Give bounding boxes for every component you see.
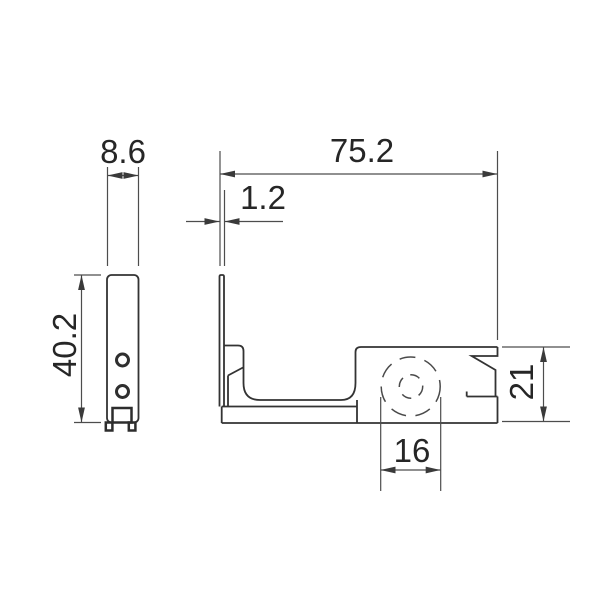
dimension-text-75-2: 75.2 — [330, 132, 394, 169]
dimension-wall-thickness: 1.2 — [186, 179, 286, 266]
hidden-hole-outer — [381, 357, 440, 416]
base-plate — [222, 400, 498, 423]
dimension-hidden-hole: 16 — [381, 397, 441, 491]
lower-hole — [117, 386, 129, 398]
dimension-text-40-2: 40.2 — [46, 313, 83, 377]
side-view-body — [107, 275, 139, 423]
left-foot — [106, 423, 113, 431]
dimension-side-width: 8.6 — [100, 133, 146, 266]
extension-lines — [108, 167, 139, 266]
technical-drawing: 8.6 75.2 1.2 40.2 21 — [0, 0, 600, 600]
clip-detail — [228, 368, 243, 407]
square-notch — [113, 408, 132, 423]
channel-profile — [224, 346, 498, 401]
dimension-overall-width: 75.2 — [220, 132, 498, 340]
dimension-text-1-2: 1.2 — [240, 179, 286, 216]
hidden-hole-inner — [399, 375, 422, 398]
thin-wall — [220, 275, 225, 407]
upper-hole — [117, 354, 129, 366]
snap-notch-edge — [467, 347, 498, 423]
front-view — [220, 275, 498, 423]
side-view — [106, 275, 139, 431]
drawing-canvas: 8.6 75.2 1.2 40.2 21 — [0, 0, 600, 600]
dimension-right-block-height: 21 — [502, 347, 570, 422]
dimension-text-8-6: 8.6 — [100, 133, 146, 170]
dimension-side-height: 40.2 — [46, 275, 101, 423]
dimension-text-21: 21 — [503, 364, 540, 401]
right-foot — [129, 423, 136, 431]
dimension-text-16: 16 — [394, 432, 431, 469]
